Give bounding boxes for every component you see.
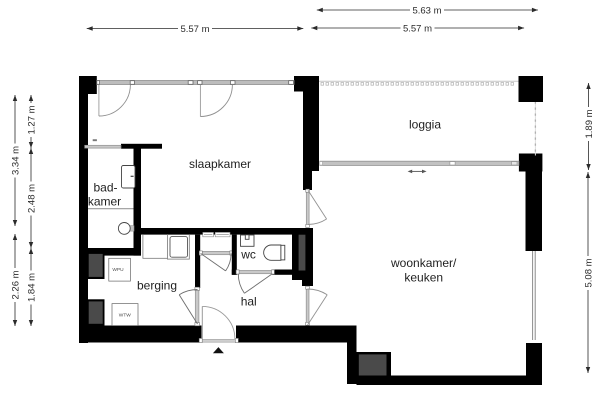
svg-text:wc: wc [240,248,256,262]
svg-text:WPU: WPU [112,267,124,273]
svg-text:bad-: bad- [93,181,117,195]
svg-text:kamer: kamer [88,195,121,209]
svg-text:2.48 m: 2.48 m [26,184,37,213]
svg-text:slaapkamer: slaapkamer [189,157,251,171]
svg-text:5.63 m: 5.63 m [412,5,441,16]
svg-text:1.84 m: 1.84 m [26,273,37,302]
svg-text:5.08 m: 5.08 m [583,258,594,287]
svg-text:berging: berging [137,279,177,293]
svg-text:loggia: loggia [409,118,441,132]
svg-text:5.57 m: 5.57 m [180,24,209,35]
svg-text:hal: hal [241,295,257,309]
svg-text:5.57 m: 5.57 m [403,23,432,34]
svg-text:woonkamer/: woonkamer/ [390,256,457,270]
svg-text:keuken: keuken [404,271,443,285]
svg-text:1.89 m: 1.89 m [584,109,595,138]
svg-text:WTW: WTW [119,312,131,318]
svg-text:3.34 m: 3.34 m [10,146,21,175]
svg-text:1.27 m: 1.27 m [26,105,37,134]
svg-text:2.26 m: 2.26 m [10,270,21,299]
